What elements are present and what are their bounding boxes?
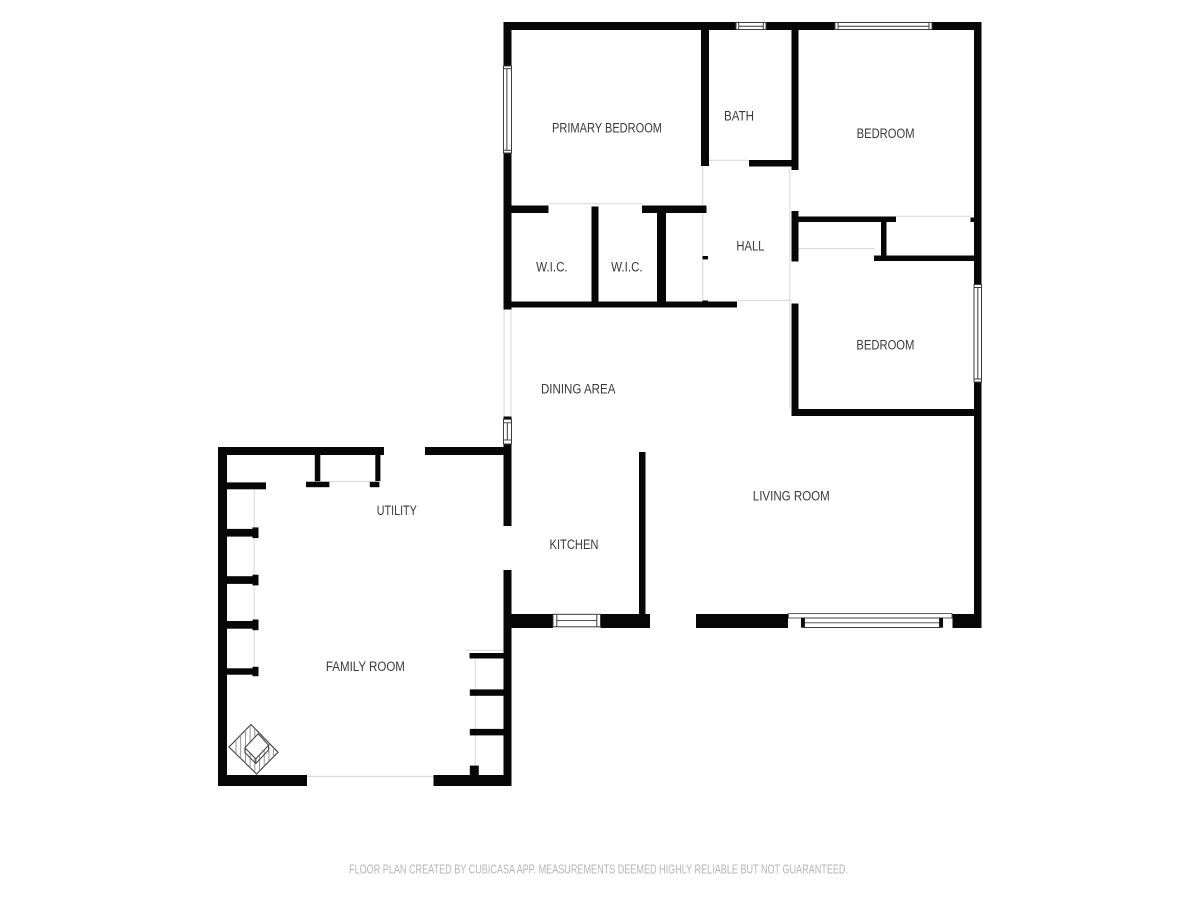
svg-text:KITCHEN: KITCHEN — [550, 537, 599, 552]
svg-text:FLOOR PLAN CREATED BY CUBICASA: FLOOR PLAN CREATED BY CUBICASA APP. MEAS… — [349, 863, 848, 877]
svg-text:DINING AREA: DINING AREA — [541, 381, 616, 396]
svg-text:HALL: HALL — [736, 239, 764, 254]
svg-text:W.I.C.: W.I.C. — [611, 259, 643, 274]
svg-text:LIVING ROOM: LIVING ROOM — [753, 489, 830, 504]
svg-text:PRIMARY BEDROOM: PRIMARY BEDROOM — [552, 120, 662, 135]
svg-text:BEDROOM: BEDROOM — [857, 126, 915, 141]
svg-text:W.I.C.: W.I.C. — [536, 259, 568, 274]
svg-text:BEDROOM: BEDROOM — [856, 338, 914, 353]
svg-text:UTILITY: UTILITY — [377, 503, 417, 518]
svg-text:FAMILY ROOM: FAMILY ROOM — [326, 659, 405, 674]
svg-text:BATH: BATH — [724, 109, 754, 124]
